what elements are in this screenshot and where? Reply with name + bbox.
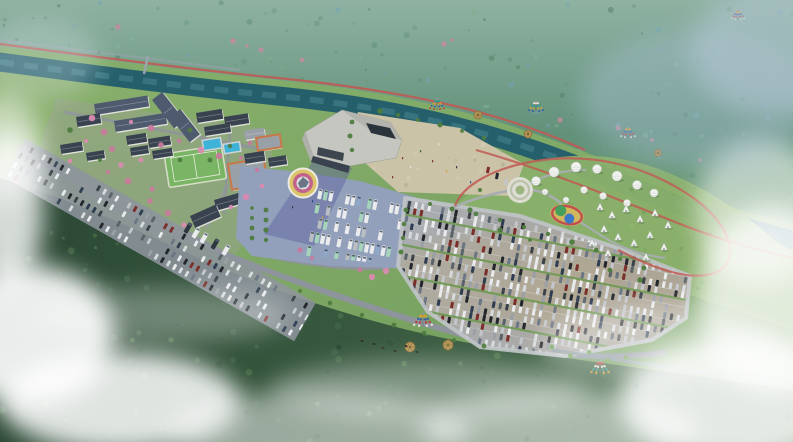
aerial-rendering — [0, 0, 793, 442]
central-circle-plaza — [507, 177, 533, 203]
flower-emblem — [288, 168, 319, 199]
scene-canvas — [0, 0, 793, 442]
